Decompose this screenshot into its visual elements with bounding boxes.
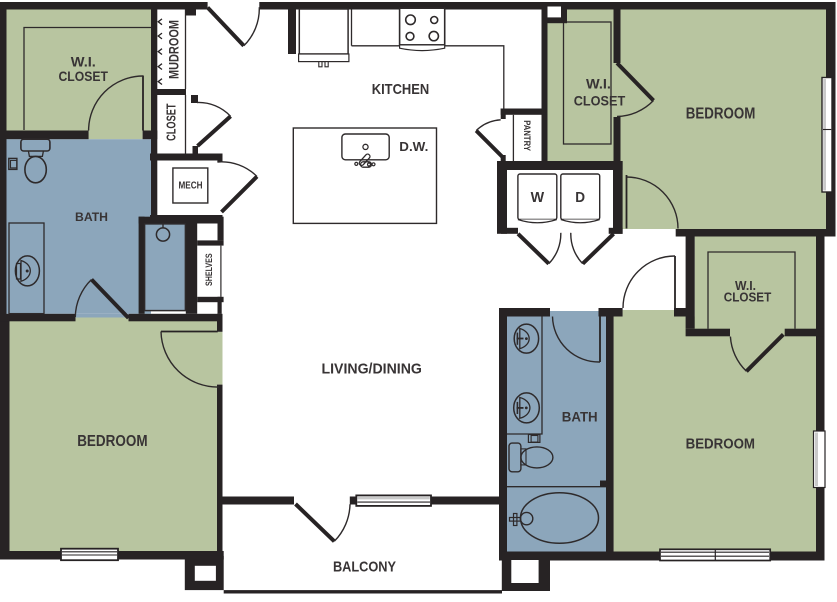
svg-text:LIVING/DINING: LIVING/DINING — [322, 361, 422, 377]
svg-text:BEDROOM: BEDROOM — [686, 105, 756, 122]
svg-text:BALCONY: BALCONY — [333, 559, 396, 575]
svg-text:BATH: BATH — [562, 410, 598, 425]
svg-text:MUDROOM: MUDROOM — [166, 20, 182, 79]
svg-text:D.W.: D.W. — [399, 139, 428, 154]
svg-text:BEDROOM: BEDROOM — [686, 436, 755, 453]
svg-text:MECH: MECH — [178, 181, 202, 192]
svg-text:CLOSET: CLOSET — [58, 69, 108, 84]
svg-text:W: W — [531, 189, 545, 206]
svg-text:BATH: BATH — [75, 210, 108, 224]
svg-text:D: D — [575, 189, 585, 206]
svg-text:SHELVES: SHELVES — [204, 253, 214, 286]
svg-text:PANTRY: PANTRY — [522, 120, 532, 151]
svg-text:BEDROOM: BEDROOM — [77, 433, 147, 450]
svg-text:KITCHEN: KITCHEN — [372, 81, 430, 98]
svg-text:CLOSET: CLOSET — [574, 93, 626, 108]
svg-text:CLOSET: CLOSET — [724, 289, 772, 304]
svg-text:W.I.: W.I. — [71, 55, 96, 70]
svg-text:W.I.: W.I. — [586, 77, 611, 92]
svg-text:CLOSET: CLOSET — [164, 103, 179, 140]
